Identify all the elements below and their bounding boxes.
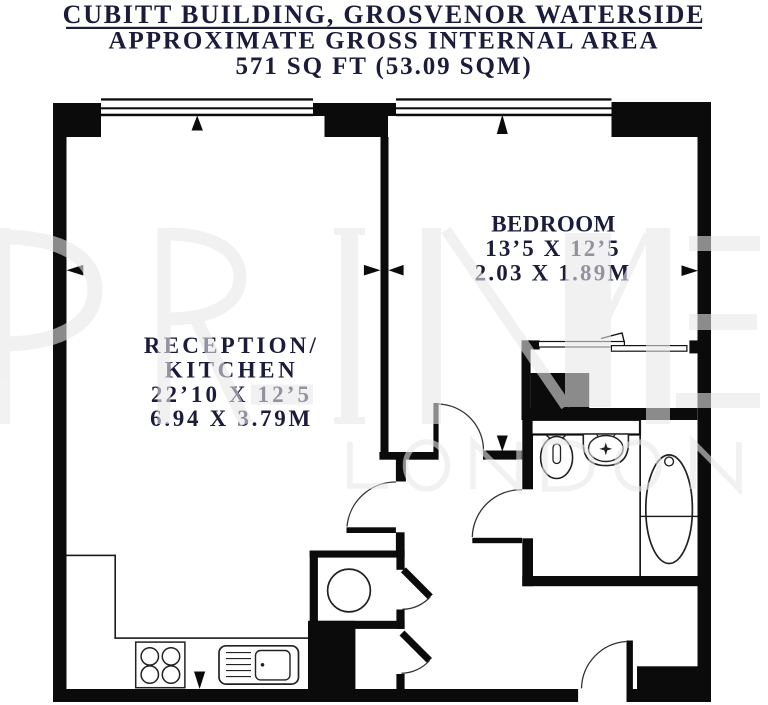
svg-text:BEDROOM: BEDROOM xyxy=(491,212,616,237)
svg-text:6.94 X 3.79M: 6.94 X 3.79M xyxy=(150,406,313,431)
svg-text:APPROXIMATE GROSS INTERNAL ARE: APPROXIMATE GROSS INTERNAL AREA xyxy=(108,28,659,55)
svg-text:CUBITT BUILDING, GROSVENOR WAT: CUBITT BUILDING, GROSVENOR WATERSIDE xyxy=(63,0,706,29)
svg-text:571 SQ FT (53.09 SQM): 571 SQ FT (53.09 SQM) xyxy=(235,53,532,80)
